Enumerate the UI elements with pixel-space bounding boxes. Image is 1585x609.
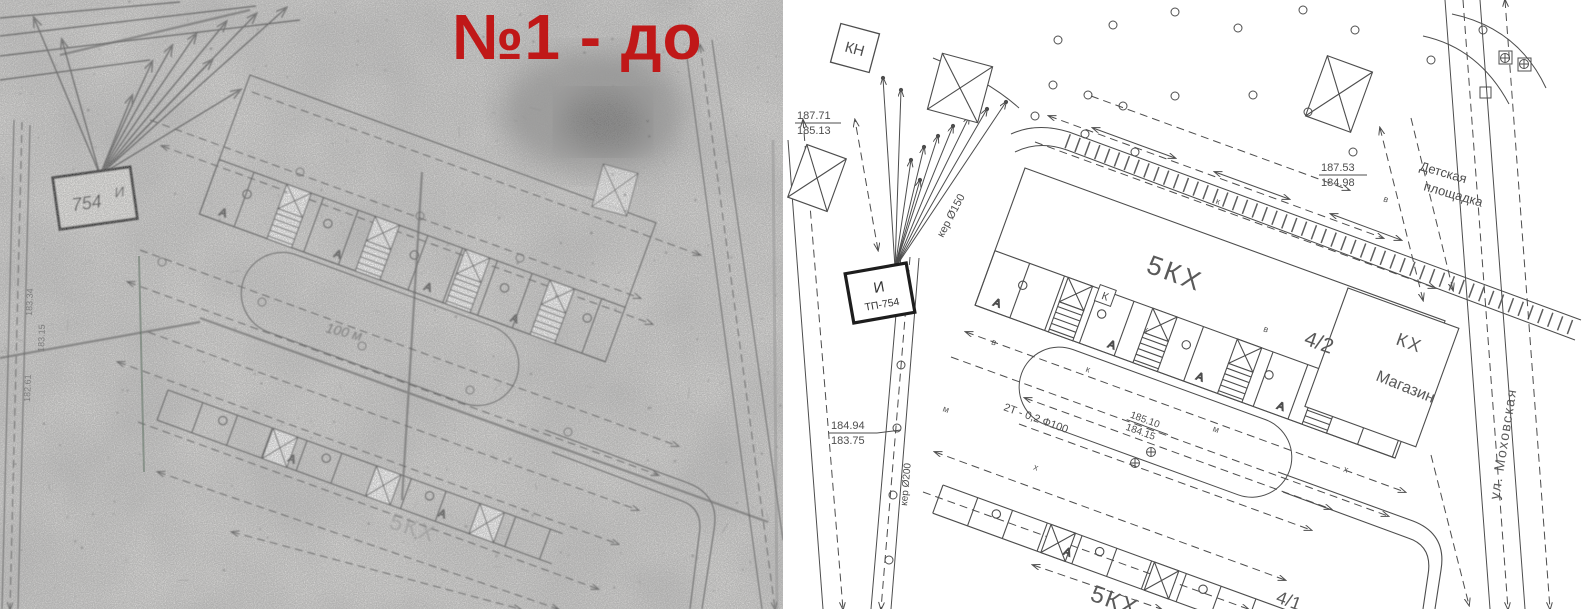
scan-grain-noise <box>0 0 783 609</box>
after-transformer-box: И ТП-754 <box>845 263 915 323</box>
panel-before-scan: АААААА 754 И 100 м 5КХ 183.34 183.15 182… <box>0 0 783 609</box>
panel-after-clean: ААААААвкмхвкмхвк КН И ТП-754 187.71 185.… <box>783 0 1585 609</box>
elevation-bottom: 185.13 <box>797 125 831 137</box>
before-after-comparison: АААААА 754 И 100 м 5КХ 183.34 183.15 182… <box>0 0 1585 609</box>
elevation-bottom: 183.75 <box>831 435 865 447</box>
after-map-drawing: ААААААвкмхвкмхвк КН И ТП-754 187.71 185.… <box>783 0 1585 609</box>
elevation-top: 184.94 <box>831 420 865 432</box>
before-map-drawing: АААААА 754 И 100 м 5КХ 183.34 183.15 182… <box>0 0 783 609</box>
elevation-top: 187.53 <box>1321 162 1355 174</box>
elevation-top: 187.71 <box>797 110 831 122</box>
elevation-bottom: 184.98 <box>1321 177 1355 189</box>
title-before: №1 - до <box>452 0 703 74</box>
